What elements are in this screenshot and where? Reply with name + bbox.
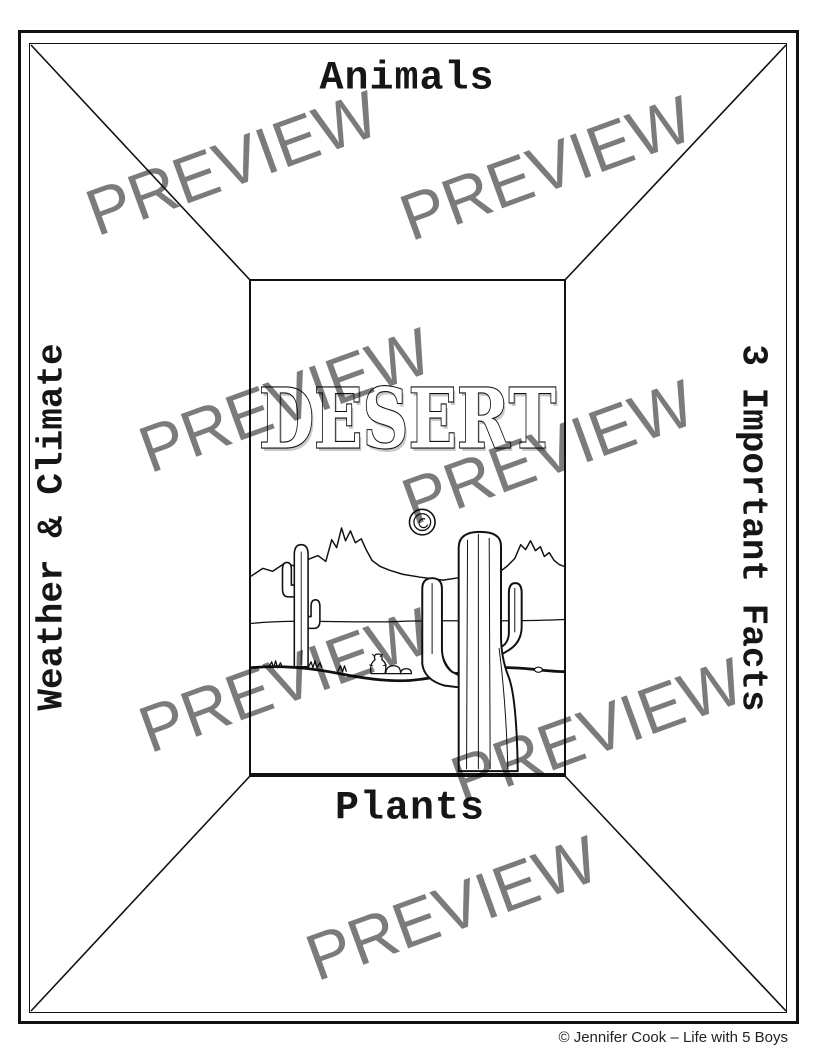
section-label-weather-climate: Weather & Climate — [32, 343, 73, 710]
section-label-important-facts: 3 Important Facts — [733, 344, 774, 711]
copyright-line: © Jennifer Cook – Life with 5 Boys — [559, 1029, 789, 1046]
pebble — [534, 667, 542, 672]
worksheet-page: Animals Weather & Climate 3 Important Fa… — [0, 0, 816, 1056]
